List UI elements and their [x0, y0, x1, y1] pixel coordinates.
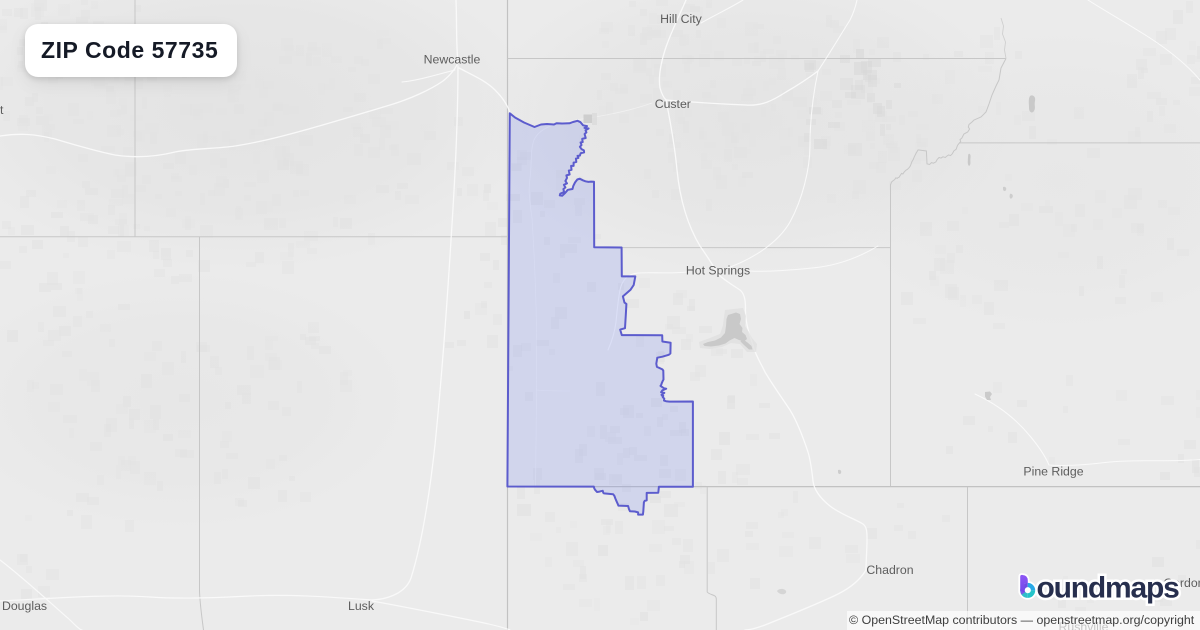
- svg-text:oundmaps: oundmaps: [1037, 572, 1180, 605]
- svg-text:Chadron: Chadron: [866, 563, 913, 577]
- svg-text:Custer: Custer: [655, 97, 691, 111]
- svg-text:Pine Ridge: Pine Ridge: [1023, 464, 1083, 478]
- svg-text:Douglas: Douglas: [2, 599, 47, 613]
- svg-text:Newcastle: Newcastle: [424, 53, 481, 67]
- svg-text:Hot Springs: Hot Springs: [686, 264, 750, 278]
- svg-text:Lusk: Lusk: [348, 599, 375, 613]
- svg-text:Hill City: Hill City: [660, 12, 703, 26]
- svg-text:t: t: [0, 103, 4, 117]
